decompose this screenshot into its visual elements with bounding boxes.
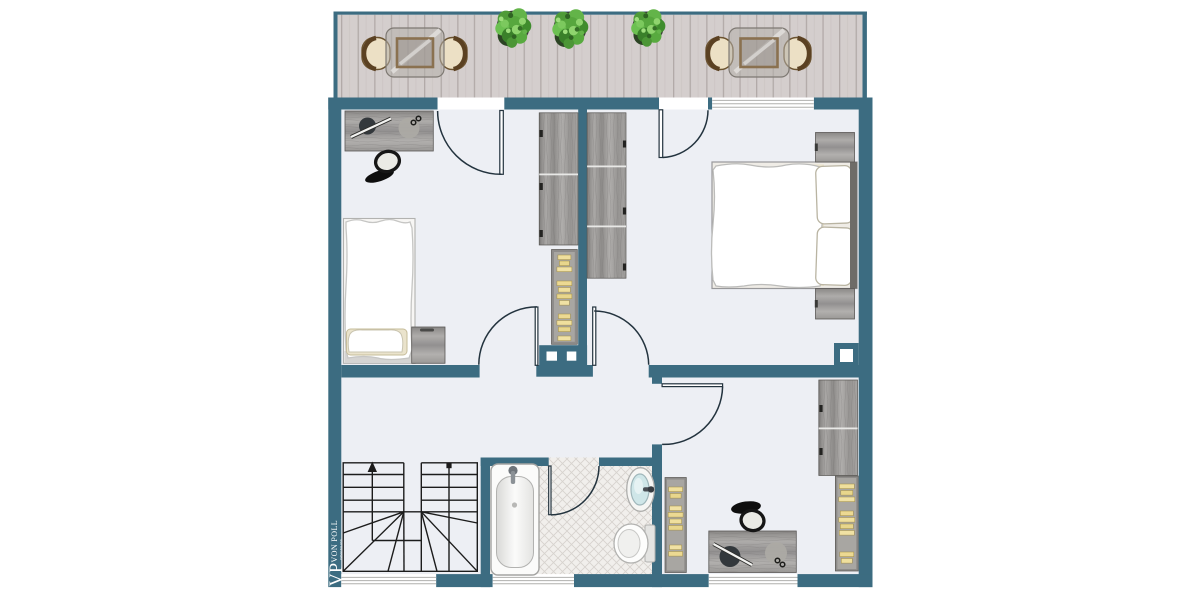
svg-text:VP: VP [327, 563, 347, 587]
svg-text:IMMOBILIEN: IMMOBILIEN [339, 539, 343, 560]
svg-text:VON POLL: VON POLL [330, 520, 339, 563]
